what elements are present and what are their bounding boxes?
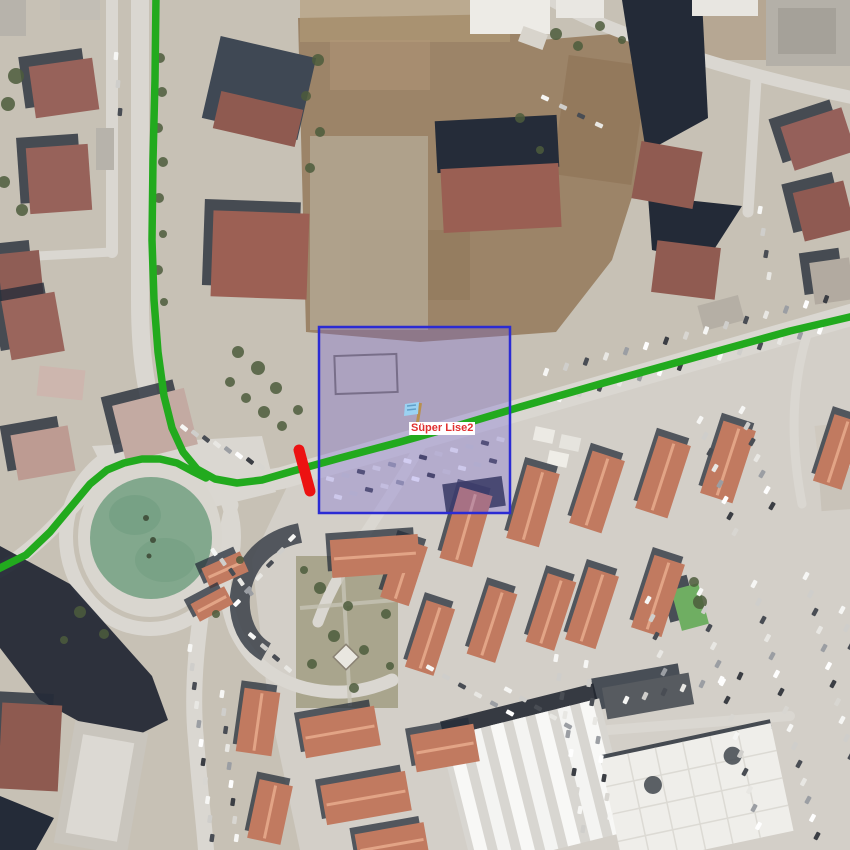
map-canvas[interactable]: Süper Lise2 — [0, 0, 850, 850]
marker-label[interactable]: Süper Lise2 — [409, 422, 475, 435]
